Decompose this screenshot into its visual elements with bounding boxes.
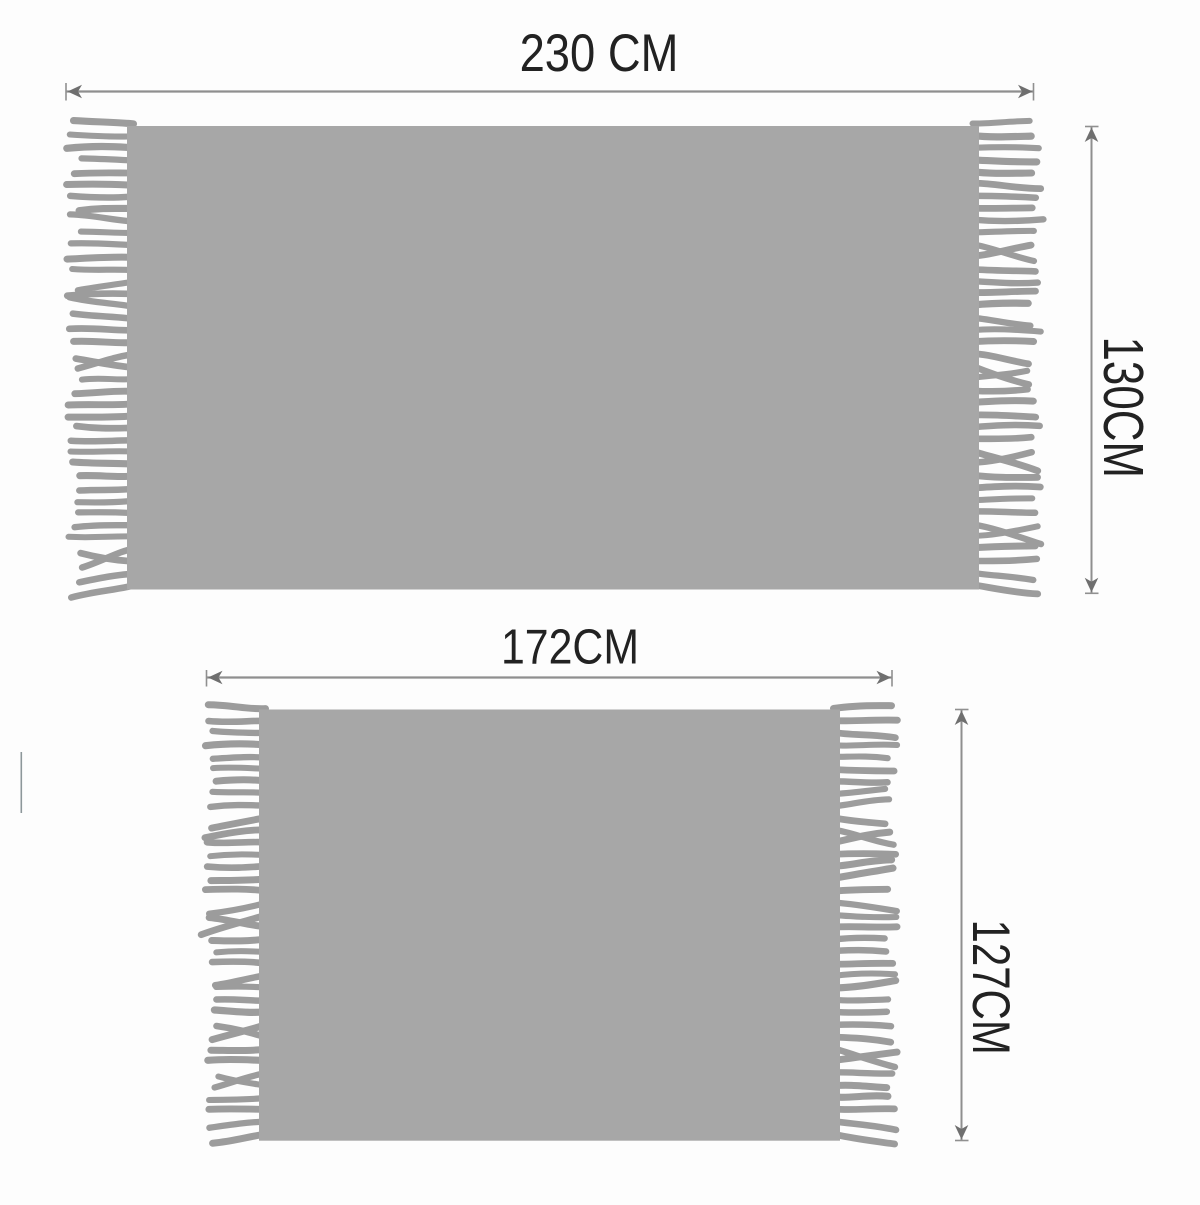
svg-text:127CM: 127CM [961, 920, 1020, 1055]
svg-text:130CM: 130CM [1092, 337, 1156, 478]
svg-text:230 CM: 230 CM [520, 24, 679, 83]
svg-text:172CM: 172CM [501, 619, 639, 675]
